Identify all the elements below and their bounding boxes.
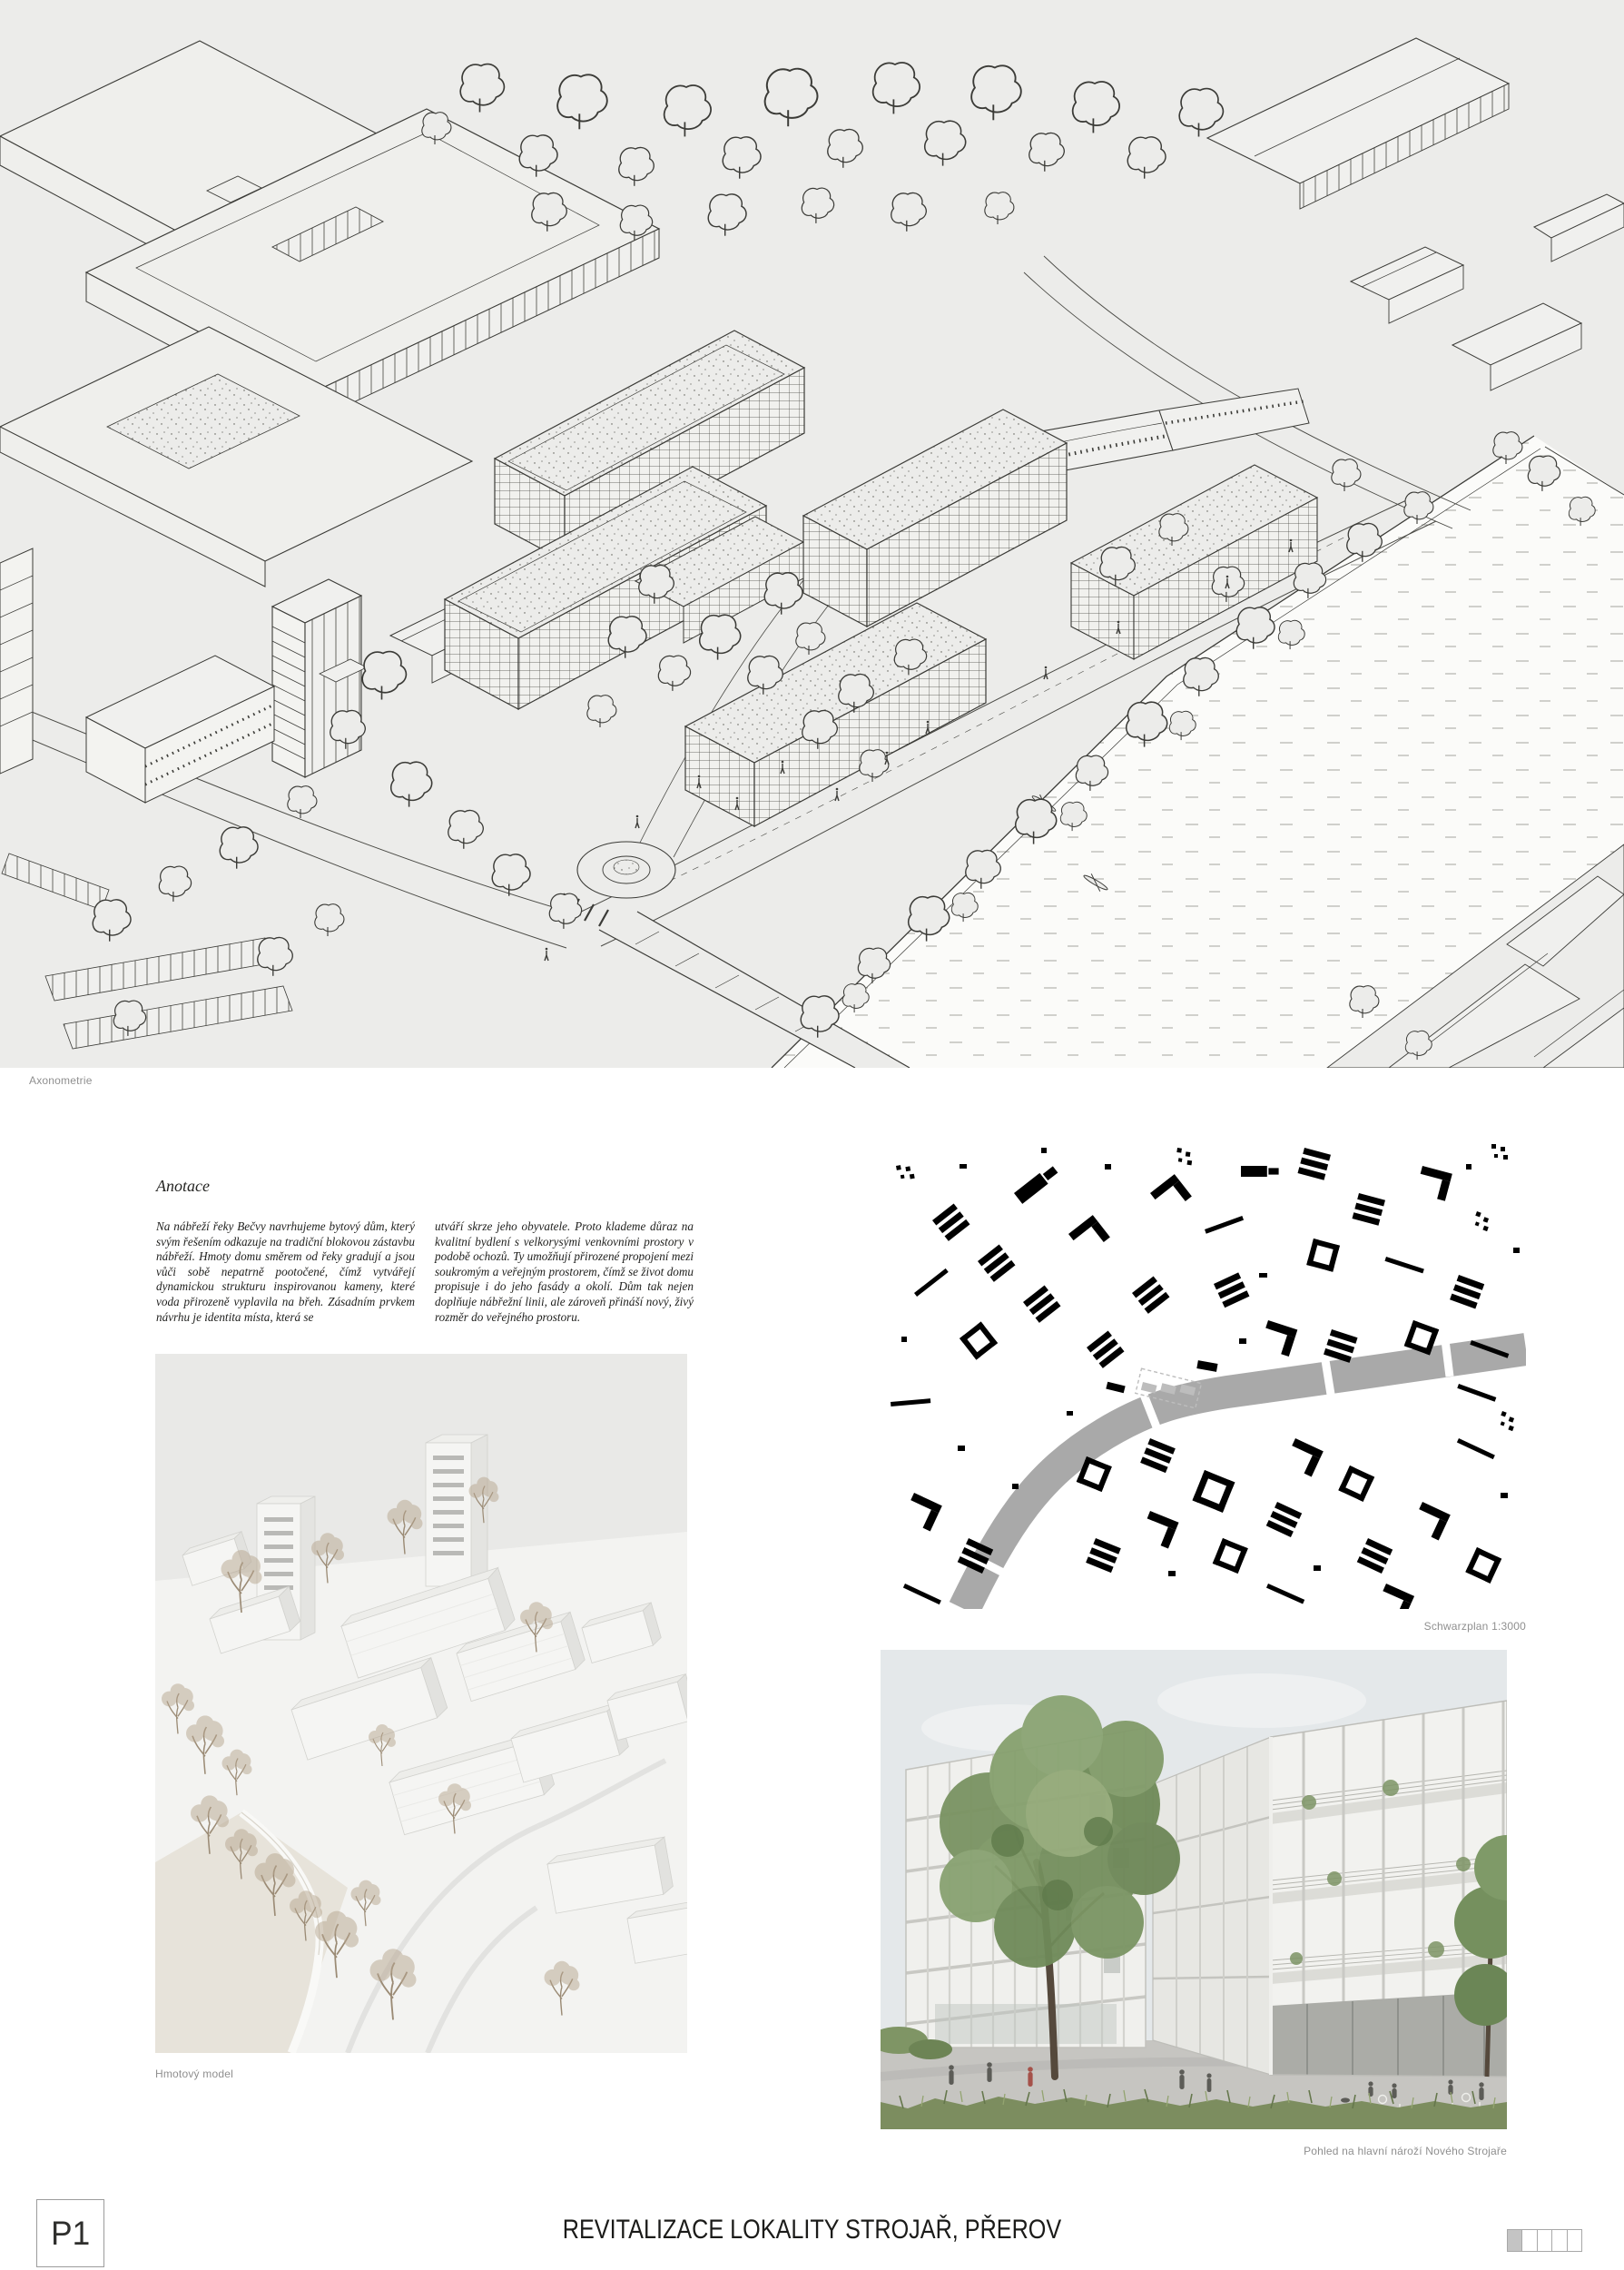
page-indicator-cell <box>1551 2229 1567 2252</box>
page-indicator-cell <box>1537 2229 1552 2252</box>
presentation-board: Axonometrie Anotace Na nábřeží řeky Bečv… <box>0 0 1624 2270</box>
axonometric-drawing <box>0 0 1624 1068</box>
annotation-column-1: Na nábřeží řeky Bečvy navrhujeme bytový … <box>156 1219 415 1325</box>
schwarzplan-svg <box>878 1111 1526 1609</box>
schwarzplan-map <box>878 1111 1526 1609</box>
model-photo-svg <box>155 1354 687 2053</box>
schwarzplan-caption: Schwarzplan 1:3000 <box>1072 1620 1526 1633</box>
annotation-columns: Na nábřeží řeky Bečvy navrhujeme bytový … <box>156 1219 694 1325</box>
page-indicator-cell <box>1521 2229 1537 2252</box>
page-code-box: P1 <box>36 2199 104 2267</box>
page-indicator-cell <box>1507 2229 1522 2252</box>
render-svg <box>881 1650 1507 2129</box>
annotation-section: Anotace Na nábřeží řeky Bečvy navrhujeme… <box>156 1177 694 1325</box>
axonometric-drawing-svg <box>0 0 1624 1068</box>
roundabout <box>577 842 675 898</box>
render-caption: Pohled na hlavní nároží Nového Strojaře <box>1053 2145 1507 2157</box>
axonometric-caption: Axonometrie <box>29 1074 93 1087</box>
page-indicator <box>1507 2229 1582 2252</box>
page-indicator-cell <box>1567 2229 1582 2252</box>
corner-view-render <box>881 1650 1507 2129</box>
annotation-column-2: utváří skrze jeho obyvatele. Proto klade… <box>435 1219 694 1325</box>
model-photo <box>155 1354 687 2053</box>
page-code: P1 <box>51 2215 90 2253</box>
model-caption: Hmotový model <box>155 2068 233 2080</box>
render-right-building-side <box>1153 1732 1271 2077</box>
poster-title: REVITALIZACE LOKALITY STROJAŘ, PŘEROV <box>130 2216 1494 2245</box>
annotation-heading: Anotace <box>156 1177 694 1196</box>
